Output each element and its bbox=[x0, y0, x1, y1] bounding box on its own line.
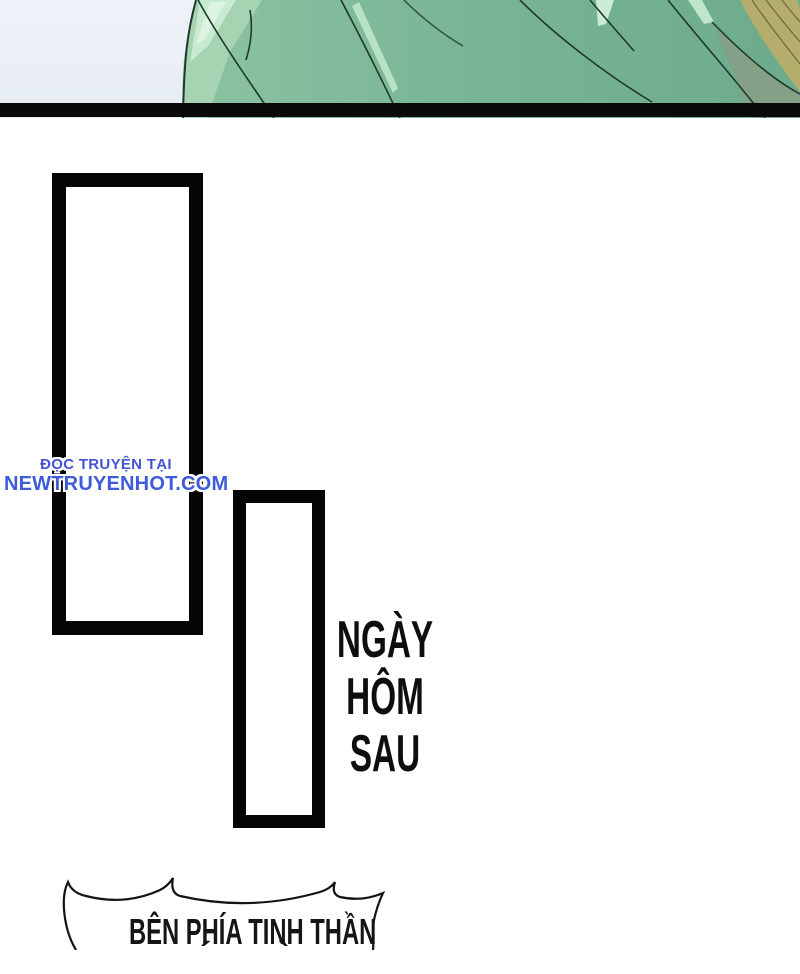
panel-frame-small bbox=[233, 490, 325, 828]
divider-bar bbox=[0, 103, 800, 117]
caption-line: SAU bbox=[321, 726, 449, 783]
caption-line: NGÀY bbox=[321, 612, 449, 669]
watermark-site-url: NEWTRUYENHOT.COM bbox=[4, 474, 208, 494]
speech-bubble-line2-fragment: ` bbox=[278, 938, 289, 972]
top-artwork-panel bbox=[0, 0, 800, 118]
caption-ngay-hom-sau: NGÀY HÔM SAU bbox=[321, 612, 449, 783]
caption-line: HÔM bbox=[321, 669, 449, 726]
panel-frame-tall bbox=[52, 173, 203, 635]
watermark-line-1: ĐỌC TRUYỆN TẠI bbox=[4, 456, 208, 474]
speech-bubble-text: BÊN PHÍA TINH THẦN bbox=[129, 914, 327, 950]
speech-bubble-line2-fragment: ´ bbox=[200, 938, 211, 972]
comic-page: ĐỌC TRUYỆN TẠI NEWTRUYENHOT.COM NGÀY HÔM… bbox=[0, 0, 800, 950]
watermark: ĐỌC TRUYỆN TẠI NEWTRUYENHOT.COM bbox=[4, 456, 208, 494]
